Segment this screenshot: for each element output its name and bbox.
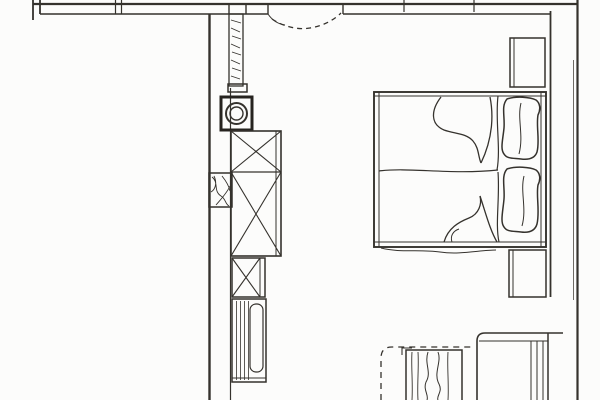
door-swing-arc [272,13,341,29]
desk-side-band-lines [531,341,543,400]
mattress-divider [379,170,498,172]
pier-outline [209,173,232,207]
cabinet-x-mark [232,258,260,297]
nightstand-bottom [509,250,546,297]
double-bed [374,92,546,253]
pier-wood-grain-hatch [211,176,230,206]
radiator-line-4 [437,352,440,400]
pillow-column-divider [497,96,499,242]
cabinet-x [232,258,265,297]
shelf-rounded-element [250,304,263,372]
wardrobe [231,131,281,256]
partition-wall [228,4,247,92]
wardrobe-x-top [231,131,281,172]
partition-top-joint [229,4,246,14]
radiator-line-3 [425,352,428,400]
radiator-line-5 [448,352,449,400]
duvet-fold-top-left-curve [433,97,481,163]
duvet-fold-top-right-curve [481,97,492,163]
desk [477,333,563,400]
shelf-stripes [237,301,249,380]
duvet-overhang-wave [381,248,496,253]
circular-fixture [221,97,252,130]
pillow-top-crease [519,103,521,154]
duvet-fold-bottom-left-curve [444,196,481,242]
masonry-pier [209,173,232,207]
wardrobe-x-bottom [231,172,281,256]
fixture-inner-circle [230,107,243,120]
radiator-line-2 [418,352,419,400]
desk-top-and-left-edge [477,333,563,400]
wardrobe-outline [231,131,281,256]
floor-plan-drawing [0,0,600,400]
entry-door [268,13,341,29]
radiator-line-1 [412,352,413,400]
fixture-outer-circle [226,103,247,124]
pillow-bottom-crease [522,176,524,226]
top-wall [33,0,577,20]
shelf-outline [232,299,266,382]
duvet-small-curl [451,229,459,242]
right-wall [574,0,578,400]
floor-plan-scan [0,0,600,400]
shelf-unit [232,299,266,382]
nightstand-bottom-outline [509,250,546,297]
partition-outline [229,14,243,86]
door-jambs [268,4,343,14]
duvet-fold-bottom-right-curve [480,196,497,242]
radiator-top-tab [402,348,412,355]
nightstand-top [510,38,545,87]
nightstand-top-outline [510,38,545,87]
door-leaf-curve [268,14,285,25]
pillow-bottom [502,167,540,232]
wall-joint-ticks [116,0,475,14]
partition-hatch [231,20,241,79]
radiator-outline [406,350,462,400]
radiator [402,348,462,400]
